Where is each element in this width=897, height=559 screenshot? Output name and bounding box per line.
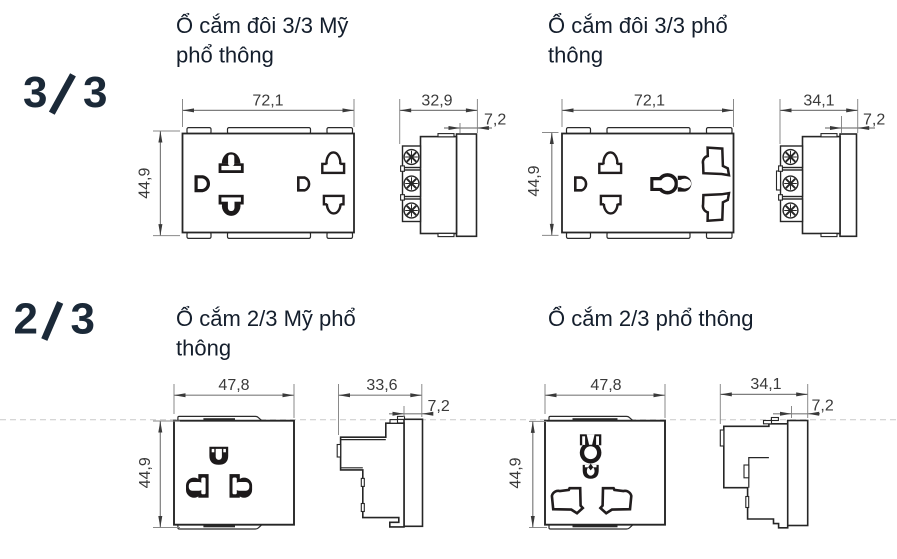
svg-text:44,9: 44,9: [137, 168, 154, 199]
svg-text:Ổ cắm đôi 3/3 Mỹ: Ổ cắm đôi 3/3 Mỹ: [176, 13, 348, 38]
svg-text:7,2: 7,2: [812, 398, 834, 415]
svg-text:44,9: 44,9: [526, 165, 543, 196]
svg-text:33,6: 33,6: [366, 377, 397, 394]
svg-text:7,2: 7,2: [428, 398, 450, 415]
svg-text:44,9: 44,9: [508, 457, 525, 488]
svg-text:thông: thông: [548, 43, 603, 68]
svg-text:72,1: 72,1: [634, 92, 665, 109]
svg-text:3: 3: [23, 68, 47, 117]
svg-text:34,1: 34,1: [750, 376, 781, 393]
svg-text:32,9: 32,9: [421, 92, 452, 109]
svg-text:3: 3: [83, 68, 107, 117]
svg-text:phổ thông: phổ thông: [176, 43, 274, 68]
svg-text:44,9: 44,9: [137, 457, 154, 488]
svg-text:thông: thông: [176, 336, 231, 361]
svg-text:7,2: 7,2: [484, 112, 506, 129]
svg-text:47,8: 47,8: [590, 377, 621, 394]
svg-text:Ổ cắm đôi 3/3 phổ: Ổ cắm đôi 3/3 phổ: [548, 13, 728, 38]
svg-text:72,1: 72,1: [252, 92, 283, 109]
svg-text:34,1: 34,1: [803, 92, 834, 109]
svg-text:3: 3: [71, 295, 95, 344]
svg-text:2: 2: [14, 295, 38, 344]
svg-text:47,8: 47,8: [218, 377, 249, 394]
svg-text:7,2: 7,2: [863, 112, 885, 129]
svg-text:Ổ cắm 2/3 phổ thông: Ổ cắm 2/3 phổ thông: [548, 306, 753, 331]
svg-text:Ổ cắm 2/3 Mỹ phổ: Ổ cắm 2/3 Mỹ phổ: [176, 306, 356, 331]
